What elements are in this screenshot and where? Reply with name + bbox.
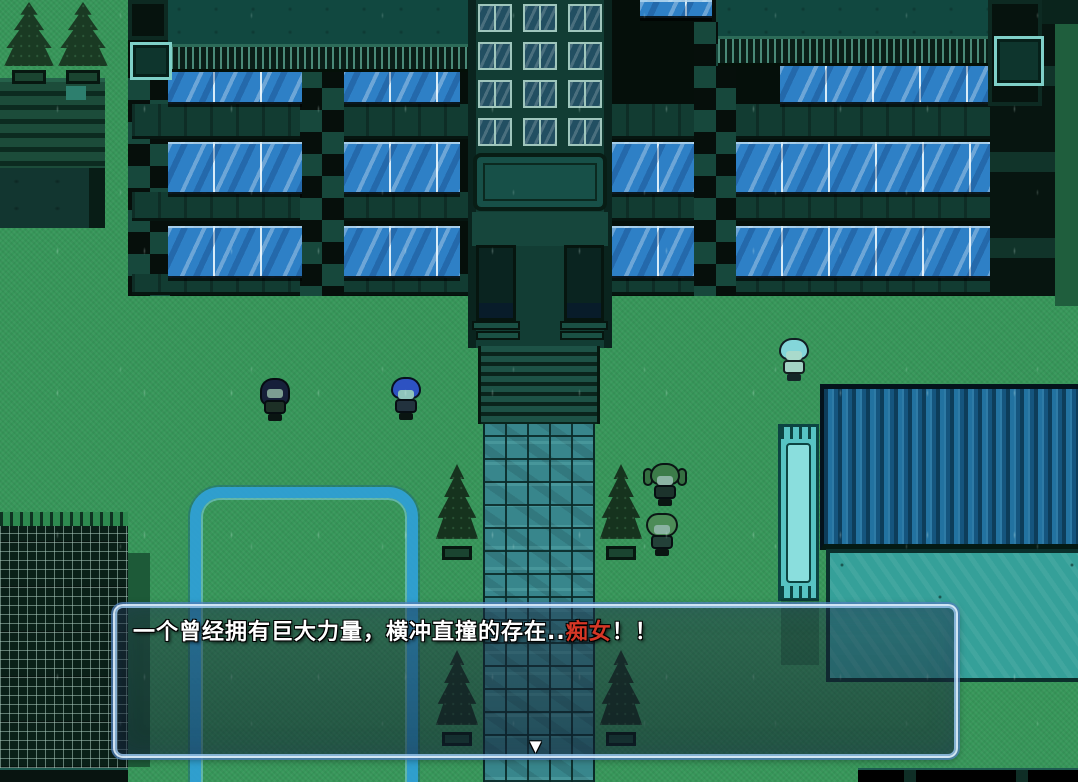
cyan-container [778, 424, 819, 601]
tree-foliage [56, 2, 110, 66]
tree [2, 2, 56, 84]
stair-platform [0, 78, 105, 168]
window-row [168, 226, 302, 278]
rooftop-panel [130, 42, 172, 80]
roof-corner [1042, 0, 1078, 24]
npc-face [654, 525, 670, 534]
tower-wall [472, 212, 608, 246]
bottom-structure [0, 768, 128, 782]
game-viewport[interactable]: 一个曾经拥有巨大力量，横冲直撞的存在..痴女！！ ▼ [0, 0, 1078, 782]
dialogue-segment: ！！ [612, 620, 658, 645]
window-row [612, 142, 694, 194]
npc-legs [658, 499, 672, 506]
window-row [780, 64, 990, 104]
entrance-sign [473, 153, 607, 211]
window-row [344, 142, 460, 194]
window-row [344, 226, 460, 278]
rooftop-railing [718, 36, 996, 66]
window-row [168, 142, 302, 194]
container-cap [781, 427, 816, 439]
rooftop-terrace [718, 0, 996, 36]
npc-torso [783, 360, 805, 374]
container-cap [781, 586, 816, 598]
dialogue-segment: 一个曾经拥有巨大力量，横冲直撞的存在.. [133, 620, 566, 645]
npc-cyan-haired-girl[interactable] [776, 337, 812, 383]
window-row [640, 0, 712, 18]
container-panel [786, 443, 811, 583]
bottom-structure [858, 768, 1078, 782]
npc-blue-haired-girl[interactable] [388, 376, 424, 422]
entrance-steps [478, 346, 600, 424]
paved-slab [0, 168, 105, 228]
entrance-tower [468, 0, 612, 348]
npc-green-twintail-girl[interactable] [647, 462, 683, 508]
rooftop-railing [150, 44, 468, 72]
npc-legs [787, 374, 801, 381]
pillar-ledge [560, 331, 604, 340]
pillar-ledge [476, 331, 520, 340]
dialogue-text: 一个曾经拥有巨大力量，横冲直撞的存在..痴女！！ [115, 606, 956, 660]
npc-torso [395, 399, 417, 413]
building-shadow [1055, 6, 1078, 306]
tree [434, 464, 480, 560]
npc-face [657, 476, 673, 485]
tree-foliage [2, 2, 56, 66]
tree-foliage [434, 464, 480, 539]
npc-green-hooded-girl[interactable] [644, 512, 680, 558]
mesh-grate [0, 512, 128, 782]
window-row [612, 226, 694, 278]
tree-planter [606, 546, 635, 560]
npc-legs [655, 549, 669, 556]
rooftop-panel [994, 36, 1044, 86]
window-row [736, 142, 990, 194]
npc-torso [651, 535, 673, 549]
grate-body [0, 526, 128, 768]
tree-planter [442, 546, 471, 560]
npc-dark-haired-girl[interactable] [257, 377, 293, 423]
entrance-pillar [476, 245, 516, 321]
window-row [736, 226, 990, 278]
tree [56, 2, 110, 84]
continue-arrow-icon[interactable]: ▼ [530, 739, 542, 754]
npc-torso [654, 485, 676, 499]
npc-legs [399, 413, 413, 420]
npc-face [786, 351, 802, 360]
rooftop-access [128, 0, 168, 40]
platform-window [66, 86, 86, 100]
npc-face [267, 389, 283, 398]
grate-edge [0, 512, 128, 526]
tower-windows [478, 4, 602, 146]
pillar-ledge [472, 321, 520, 330]
pillar-ledge [560, 321, 608, 330]
entrance-pillar [564, 245, 604, 321]
tree-planter [66, 70, 101, 84]
tree-foliage [598, 464, 644, 539]
rooftop-terrace [168, 0, 468, 44]
npc-torso [264, 400, 286, 414]
dialogue-window[interactable]: 一个曾经拥有巨大力量，横冲直撞的存在..痴女！！ ▼ [113, 604, 958, 758]
tree [598, 464, 644, 560]
dialogue-highlight: 痴女 [566, 620, 612, 645]
npc-legs [268, 414, 282, 421]
facade-column [128, 56, 170, 296]
npc-face [398, 390, 414, 399]
tree-planter [12, 70, 47, 84]
corrugated-roof [820, 384, 1078, 550]
